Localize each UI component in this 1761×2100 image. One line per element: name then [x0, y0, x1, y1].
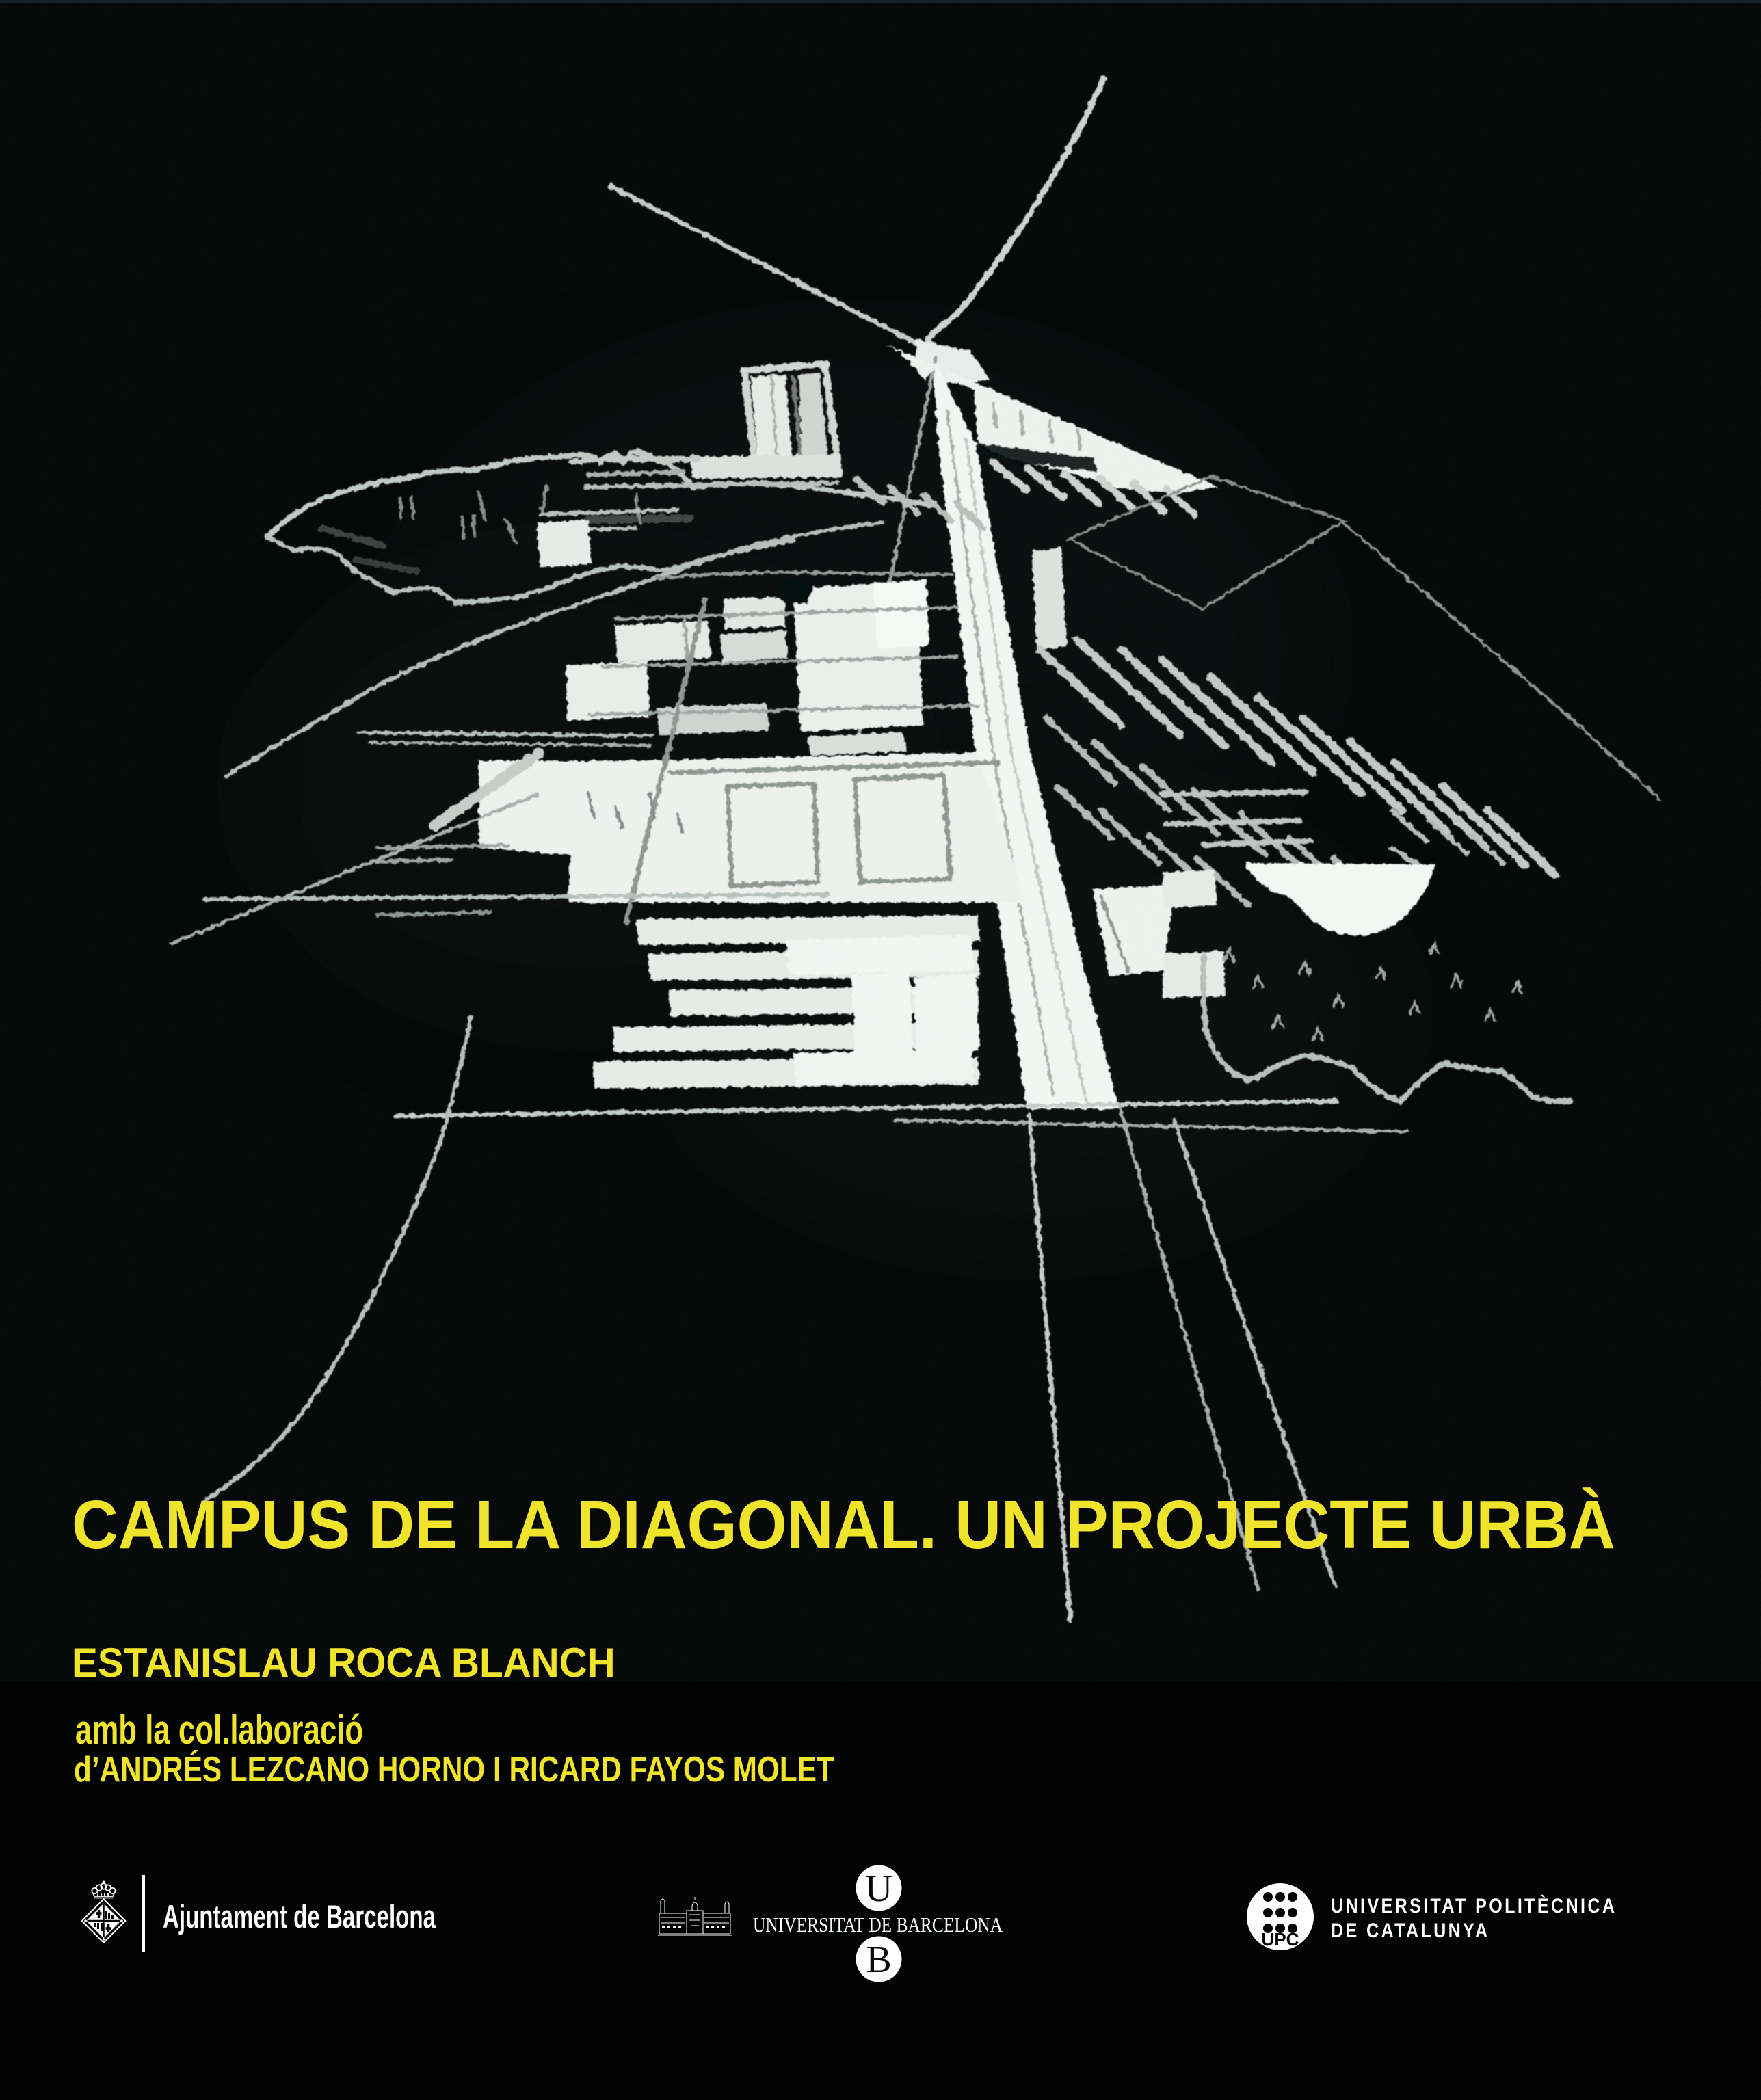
svg-text:U: U: [865, 1868, 892, 1910]
svg-text:B: B: [866, 1939, 891, 1981]
svg-text:UPC: UPC: [1262, 1929, 1299, 1950]
